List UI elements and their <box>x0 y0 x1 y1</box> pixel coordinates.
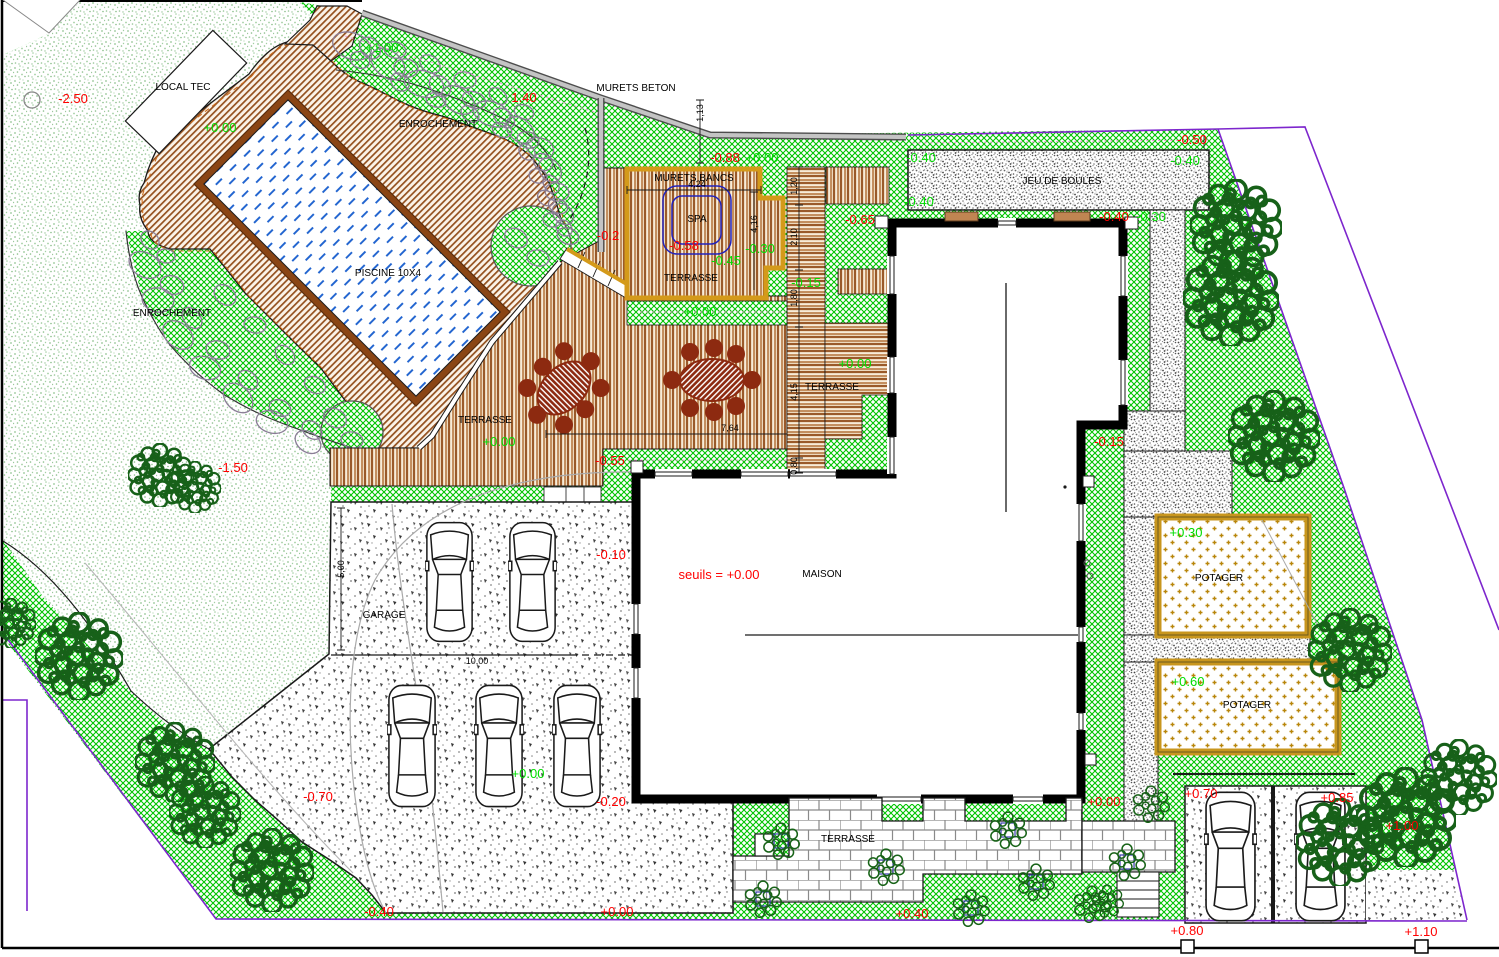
svg-text:1,20: 1,20 <box>789 177 799 195</box>
svg-text:POTAGER: POTAGER <box>1195 573 1243 584</box>
svg-text:ENROCHEMENT: ENROCHEMENT <box>133 308 211 319</box>
svg-text:-0.58: -0.58 <box>669 238 699 253</box>
svg-text:ENROCHEMENT: ENROCHEMENT <box>399 119 477 130</box>
svg-text:-0.30: -0.30 <box>745 241 775 256</box>
svg-text:5,00: 5,00 <box>336 560 346 578</box>
svg-text:-1.50: -1.50 <box>218 460 248 475</box>
svg-text:MAISON: MAISON <box>802 569 841 580</box>
svg-text:TERRASSE: TERRASSE <box>805 382 859 393</box>
svg-text:LOCAL TEC: LOCAL TEC <box>155 82 210 93</box>
svg-text:+0.85: +0.85 <box>1321 790 1354 805</box>
svg-text:0,80: 0,80 <box>789 457 799 475</box>
svg-text:+0.00: +0.00 <box>601 904 634 919</box>
svg-text:-0.30: -0.30 <box>1136 209 1166 224</box>
svg-text:+0.00: +0.00 <box>746 150 779 165</box>
svg-text:+1.10: +1.10 <box>1405 924 1438 939</box>
svg-text:+0.60: +0.60 <box>1172 674 1205 689</box>
svg-text:+0.00: +0.00 <box>839 356 872 371</box>
svg-text:-0.2: -0.2 <box>597 228 619 243</box>
svg-text:seuils = +0.00: seuils = +0.00 <box>679 567 760 582</box>
svg-text:-0.65: -0.65 <box>845 212 875 227</box>
svg-text:1,80: 1,80 <box>789 289 799 307</box>
svg-text:+0.00: +0.00 <box>684 304 717 319</box>
svg-text:-0.15: -0.15 <box>791 275 821 290</box>
svg-text:-0.40: -0.40 <box>1170 153 1200 168</box>
svg-text:-0.40: -0.40 <box>364 904 394 919</box>
svg-text:10,00: 10,00 <box>466 656 489 666</box>
svg-text:GARAGE: GARAGE <box>363 610 406 621</box>
svg-text:SPA: SPA <box>687 214 707 225</box>
svg-text:-0.50: -0.50 <box>1177 132 1207 147</box>
svg-text:-0.88: -0.88 <box>710 150 740 165</box>
svg-text:+0.40: +0.40 <box>896 906 929 921</box>
svg-text:-2.50: -2.50 <box>58 91 88 106</box>
svg-text:JEU DE BOULES: JEU DE BOULES <box>1023 176 1102 187</box>
svg-text:-0.40: -0.40 <box>904 194 934 209</box>
svg-text:TERRASSE: TERRASSE <box>821 834 875 845</box>
svg-text:+0.70: +0.70 <box>1185 786 1218 801</box>
svg-text:+0.00: +0.00 <box>204 120 237 135</box>
svg-text:TERRASSE: TERRASSE <box>664 273 718 284</box>
svg-text:4,16: 4,16 <box>749 215 759 233</box>
svg-text:-0.55: -0.55 <box>595 453 625 468</box>
svg-text:+0.00: +0.00 <box>512 766 545 781</box>
svg-text:2,10: 2,10 <box>789 228 799 246</box>
svg-text:+0.30: +0.30 <box>1170 525 1203 540</box>
svg-text:+1.00: +1.00 <box>366 40 399 55</box>
svg-text:POTAGER: POTAGER <box>1223 700 1271 711</box>
svg-text:-0.20: -0.20 <box>596 794 626 809</box>
svg-text:-0.70: -0.70 <box>303 789 333 804</box>
svg-text:PISCINE 10X4: PISCINE 10X4 <box>355 268 422 279</box>
svg-text:1,13: 1,13 <box>695 104 705 122</box>
svg-text:-0.40: -0.40 <box>906 150 936 165</box>
svg-text:MURETS BETON: MURETS BETON <box>596 83 675 94</box>
svg-text:-0.40: -0.40 <box>1099 209 1129 224</box>
svg-text:+0.00: +0.00 <box>483 434 516 449</box>
svg-text:4,24: 4,24 <box>688 179 706 189</box>
svg-text:-0.15: -0.15 <box>1094 434 1124 449</box>
svg-text:+1.00: +1.00 <box>1386 818 1419 833</box>
svg-text:4,15: 4,15 <box>789 383 799 401</box>
svg-text:1.40: 1.40 <box>511 90 536 105</box>
svg-text:+0.80: +0.80 <box>1171 923 1204 938</box>
svg-text:7,64: 7,64 <box>721 423 739 433</box>
svg-text:-0.10: -0.10 <box>596 547 626 562</box>
svg-text:TERRASSE: TERRASSE <box>458 415 512 426</box>
svg-text:-0.45: -0.45 <box>711 253 741 268</box>
svg-text:+0.00: +0.00 <box>1088 794 1121 809</box>
